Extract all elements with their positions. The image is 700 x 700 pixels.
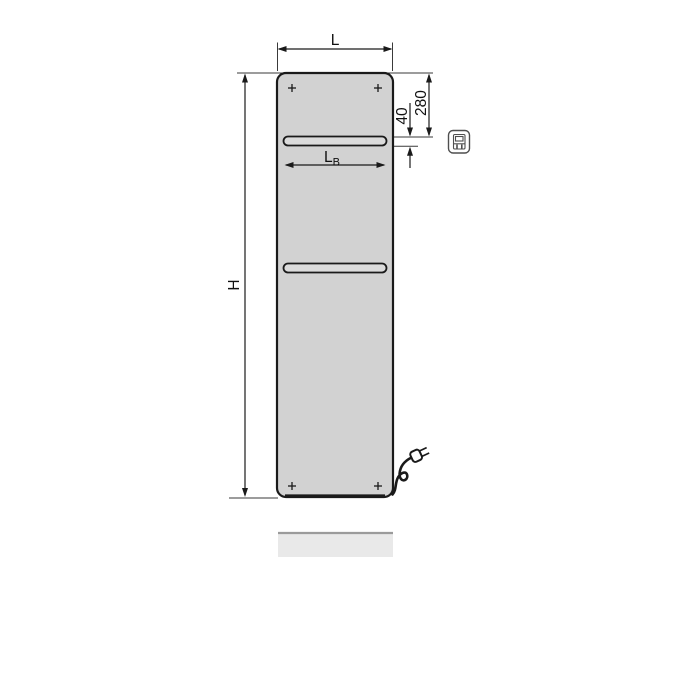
dimension-bar-thickness-label: 40	[394, 107, 411, 125]
towel-bar-upper	[284, 137, 387, 146]
power-cable-group	[393, 445, 431, 494]
towel-bar-lower	[284, 264, 387, 273]
electric-connection-icon	[449, 131, 470, 154]
radiator-dimension-diagram: L H 280 40 LB	[0, 0, 700, 700]
dimension-height: H	[226, 74, 248, 498]
dimension-height-label: H	[226, 279, 243, 290]
power-cable	[393, 458, 413, 495]
dimension-bar-thickness: 40	[394, 103, 413, 168]
dimension-top-to-bar-label: 280	[413, 90, 430, 116]
power-plug	[409, 445, 430, 463]
dimension-width-label: L	[331, 32, 340, 49]
floor-shadow	[278, 533, 393, 557]
dimension-top-to-bar: 280	[413, 74, 432, 137]
dimension-width: L	[278, 32, 393, 52]
